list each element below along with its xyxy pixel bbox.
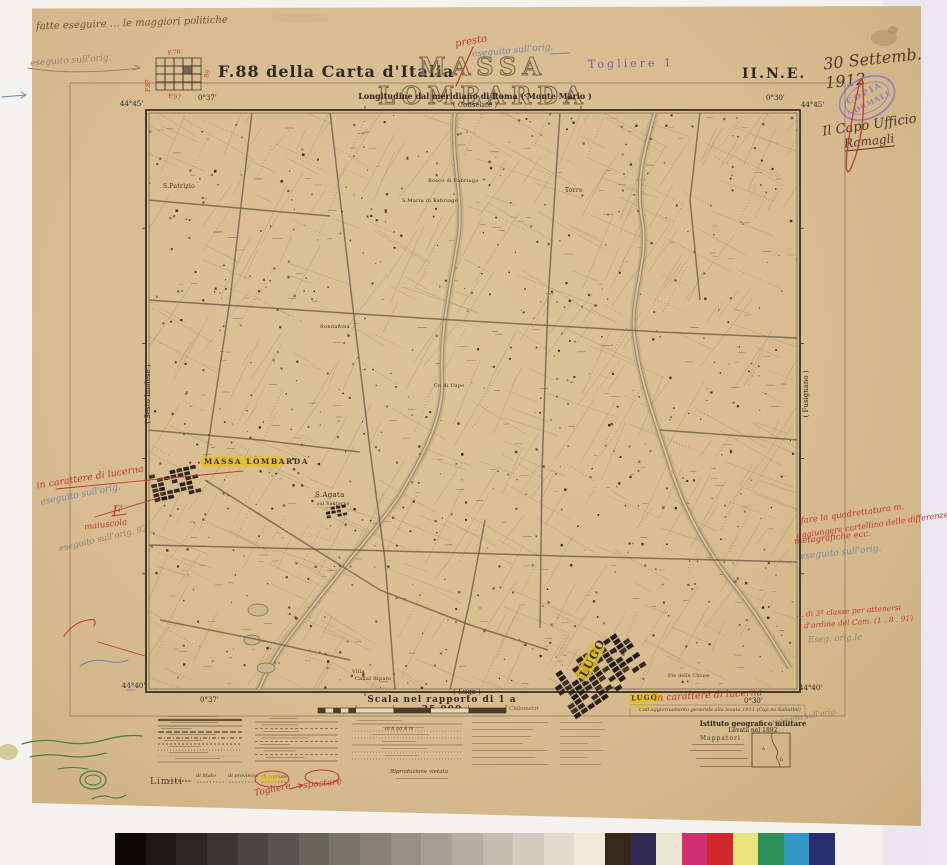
svg-text:Bosco di Fabriago: Bosco di Fabriago	[428, 178, 479, 184]
color-patch	[784, 833, 810, 865]
color-patch	[682, 833, 708, 865]
gray-step	[421, 833, 452, 865]
svg-text:S.Patrizio: S.Patrizio	[163, 183, 195, 190]
svg-text:S.Maria di Fabriago: S.Maria di Fabriago	[402, 198, 458, 204]
scale-bar	[318, 705, 506, 713]
mappatori-inset-diagram: ab	[752, 733, 790, 767]
svg-text:a: a	[762, 746, 765, 752]
gray-step	[115, 833, 146, 865]
svg-text:Torre: Torre	[565, 187, 583, 194]
map-label: S.Maria di Fabriago	[402, 198, 458, 204]
color-calibration-bar	[115, 833, 835, 865]
color-patch	[656, 833, 682, 865]
svg-text:b: b	[780, 757, 783, 763]
map-label: Pte delle Chiuse	[668, 673, 710, 679]
map-label: S.Agata	[315, 491, 345, 499]
sheet-index-grid-icon: F.76F.8789F.97	[145, 48, 212, 101]
gray-step	[207, 833, 238, 865]
svg-text:Villa: Villa	[351, 669, 365, 675]
map-label: Villa	[351, 669, 365, 675]
svg-text:Pte delle Chiuse: Pte delle Chiuse	[668, 673, 710, 679]
rivers	[244, 112, 790, 692]
gray-step	[360, 833, 391, 865]
gray-step	[299, 833, 330, 865]
svg-text:Co di Lupo: Co di Lupo	[434, 383, 465, 389]
svg-text:89: 89	[203, 69, 212, 78]
map-label: S.Patrizio	[163, 183, 195, 190]
map-artwork: F.76F.8789F.97 S.PatrizioBosco di Fabria…	[0, 0, 947, 865]
svg-text:sul Santerno: sul Santerno	[317, 501, 350, 507]
svg-text:F.97: F.97	[168, 93, 182, 101]
map-label: sul Santerno	[317, 501, 350, 507]
gray-step	[329, 833, 360, 865]
color-patch	[758, 833, 784, 865]
field-texture	[117, 80, 822, 719]
scanned-map-sheet: F.88 della Carta d'Italia MASSA LOMBARDA…	[0, 0, 947, 865]
gray-step	[483, 833, 514, 865]
gray-step	[544, 833, 575, 865]
svg-text:F.87: F.87	[145, 79, 152, 92]
gray-step	[452, 833, 483, 865]
color-patch	[631, 833, 657, 865]
svg-text:Canal Ripato: Canal Ripato	[355, 676, 391, 682]
color-patch	[707, 833, 733, 865]
paper-stains	[270, 13, 898, 46]
svg-text:S.Agata: S.Agata	[315, 491, 345, 499]
map-label: Co di Lupo	[434, 383, 465, 389]
gray-step	[574, 833, 605, 865]
gray-step	[513, 833, 544, 865]
map-label: Rondanina	[320, 324, 350, 330]
svg-text:MASSA LOMBARDA: MASSA LOMBARDA	[204, 457, 309, 466]
gray-step	[268, 833, 299, 865]
gray-step	[238, 833, 269, 865]
color-patch	[733, 833, 759, 865]
color-patch	[809, 833, 835, 865]
graticule-ticks	[142, 106, 804, 696]
svg-text:Rondanina: Rondanina	[320, 324, 350, 330]
gray-step	[176, 833, 207, 865]
map-label: Torre	[565, 187, 583, 194]
gray-step	[391, 833, 422, 865]
svg-text:F.76: F.76	[167, 48, 181, 57]
map-label: Bosco di Fabriago	[428, 178, 479, 184]
map-label: MASSA LOMBARDA	[201, 457, 309, 468]
map-label: Canal Ripato	[355, 676, 391, 682]
roads	[148, 112, 798, 690]
gray-step	[146, 833, 177, 865]
color-patch	[605, 833, 631, 865]
legend-samples	[158, 716, 752, 782]
